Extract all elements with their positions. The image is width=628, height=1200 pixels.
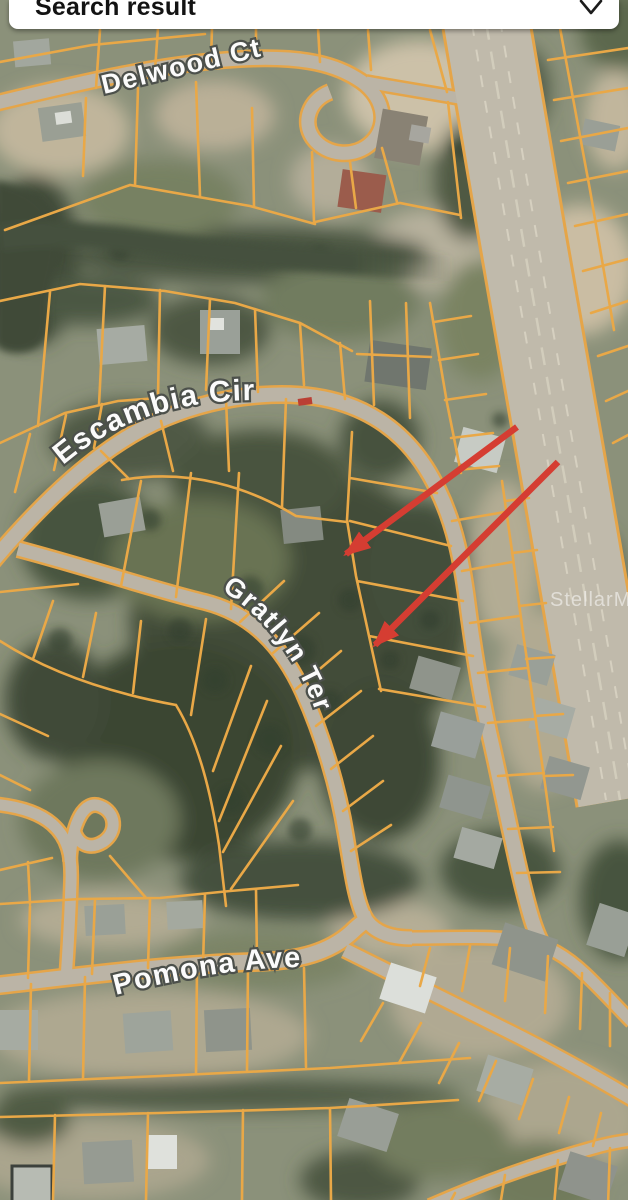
page-title: Search result xyxy=(35,0,196,22)
chevron-down-icon[interactable] xyxy=(579,0,603,17)
stellarmls-watermark: StellarMLS xyxy=(550,589,628,611)
search-result-header[interactable]: Search result xyxy=(9,0,619,29)
map-view[interactable]: Delwood Ct Escambia Cir Gratlyn Ter Pomo… xyxy=(0,0,628,1200)
search-result-screen: Delwood Ct Escambia Cir Gratlyn Ter Pomo… xyxy=(0,0,628,1200)
